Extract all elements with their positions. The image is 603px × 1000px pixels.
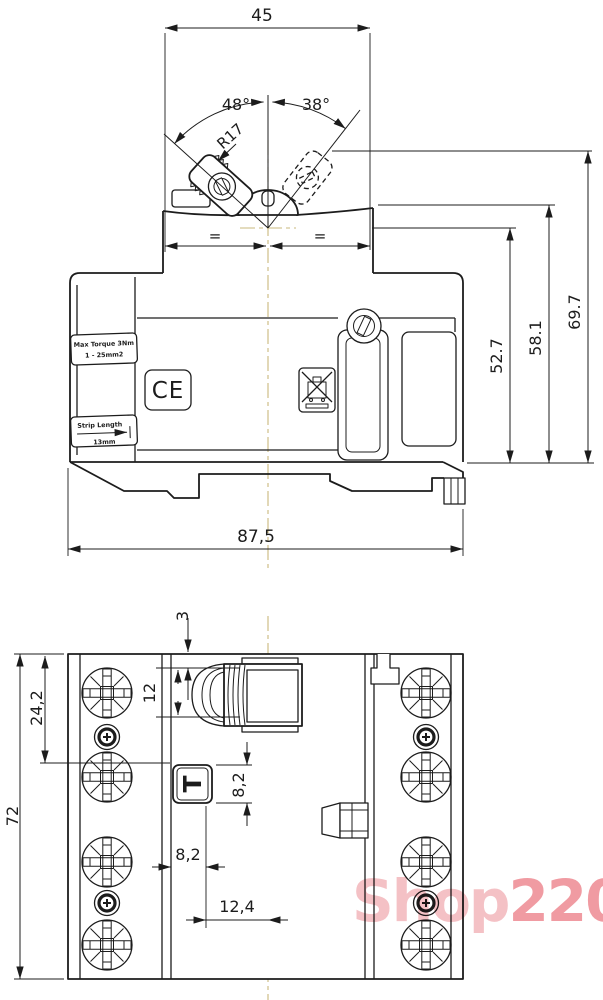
small-screw (414, 891, 439, 916)
angle-left-value: 48° (222, 95, 250, 114)
small-screw (95, 725, 120, 750)
equal-mark-left: = (209, 227, 222, 245)
strip-label-line2: 13mm (93, 438, 116, 447)
side-latch (322, 803, 368, 838)
total-width-value: 87,5 (237, 527, 275, 547)
dim-total-width: 87,5 (68, 468, 463, 556)
weee-icon (299, 368, 335, 412)
technical-drawing-page: 48° 38° R17 45 = = (0, 0, 603, 1000)
small-screw (414, 725, 439, 750)
handle-width-value: 12 (140, 683, 159, 703)
ce-mark: CE (145, 370, 191, 410)
handle-flange-bottom (242, 726, 298, 732)
torque-label: Max Torque 3Nm 1 - 25mm2 (70, 333, 137, 365)
ce-mark-text: CE (152, 378, 185, 404)
dim-lever-radius: R17 (213, 120, 247, 161)
test-button-letter: T (178, 775, 207, 792)
top-width-value: 45 (251, 6, 273, 26)
height-mid-value: 58.1 (526, 320, 545, 356)
center-offset-value: 12,4 (219, 897, 255, 916)
test-button-height-value: 8,2 (229, 772, 248, 797)
equal-mark-right: = (314, 227, 327, 245)
pole-offset-value: 24,2 (27, 690, 46, 726)
clip-latch-block (444, 478, 465, 504)
handle-protrusion-value: 3 (173, 611, 192, 621)
test-button-offset-value: 8,2 (175, 845, 200, 864)
total-height-value: 72 (3, 806, 22, 826)
radius-value: R17 (213, 120, 247, 153)
front-view: T 3 12 24,2 72 (3, 611, 463, 1000)
side-view: 48° 38° R17 45 = = (68, 6, 594, 570)
cap-top-right (296, 208, 373, 215)
handle-flat (247, 670, 298, 722)
strip-label-line1: Strip Length (77, 420, 123, 430)
test-button: T (173, 765, 212, 803)
torque-label-line2: 1 - 25mm2 (85, 350, 123, 359)
right-panel (402, 332, 456, 446)
angle-line-48 (164, 134, 268, 228)
angle-right-value: 38° (302, 95, 330, 114)
height-body-value: 52.7 (487, 338, 506, 374)
height-total-value: 69.7 (565, 294, 584, 330)
dimension-drawing: 48° 38° R17 45 = = (0, 0, 603, 1000)
slot-screw-icon (347, 309, 381, 343)
dim-angle-right: 38° (272, 95, 345, 129)
strip-length-label: Strip Length 13mm (70, 415, 137, 447)
small-screw (95, 891, 120, 916)
